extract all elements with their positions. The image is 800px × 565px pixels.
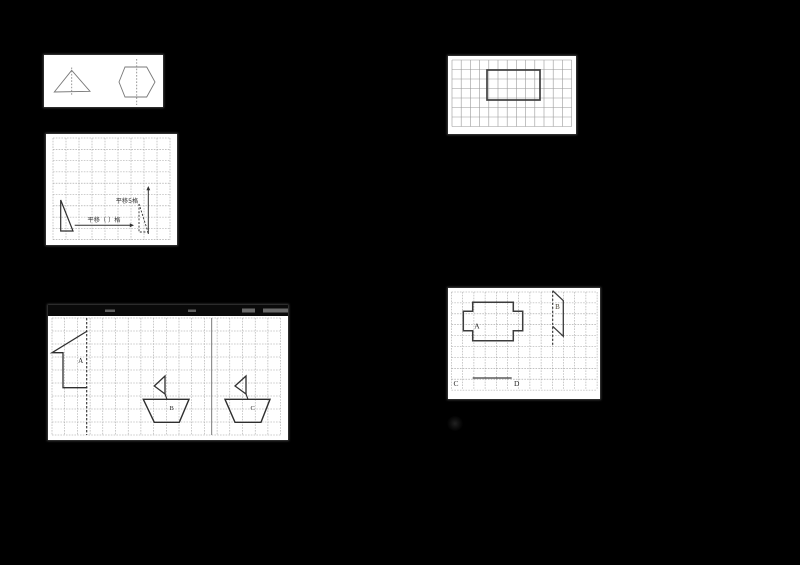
horizontal-translation-text: 平移（ ）格 [88,216,122,224]
shape-a-label: A [474,322,480,331]
boat-c-label: C [251,405,255,412]
vertical-translation-arrow [146,186,150,234]
shape-a-label: A [78,357,83,365]
boat-c-hull [225,399,270,422]
solid-triangle [61,200,73,231]
mirror-shapes-figure: ABCD [448,288,600,399]
point-d-label: D [514,379,520,388]
boats-grid-figure: ABC [48,305,288,440]
rectangle-grid-figure [448,56,576,134]
boat-c-mast [246,394,248,399]
shape-b-label: B [555,303,560,311]
mirror-shapes-figure-svg: ABCD [448,288,600,399]
boats-grid-figure-svg: ABC [48,305,288,440]
dashed-triangle [139,204,148,232]
cropped-text-mark [188,310,196,313]
symmetric-shapes-figure-svg [44,55,163,107]
cross-shape-a [463,302,522,340]
point-c-label: C [453,379,458,388]
cropped-text-mark [263,309,288,313]
rectangle-grid-figure-svg [448,56,576,134]
translation-triangles-figure: 平移（ ）格平移5格 [46,134,177,245]
boat-b-label: B [170,405,175,412]
bold-rectangle [487,70,540,100]
triangle-shape [54,70,90,92]
boat-b-sail [154,376,165,394]
boat-c-sail [235,376,246,394]
worksheet-page: { "page": { "background": "#000000", "wi… [0,0,800,565]
translation-triangles-figure-svg: 平移（ ）格平移5格 [46,134,177,245]
cropped-text-mark [105,310,115,313]
boat-b-mast [165,394,167,399]
symmetric-shapes-figure [44,55,163,107]
faint-smudge [447,416,463,431]
vertical-translation-text: 平移5格 [116,197,139,205]
cropped-text-mark [242,309,255,313]
shape-b-parallelogram [553,291,564,337]
